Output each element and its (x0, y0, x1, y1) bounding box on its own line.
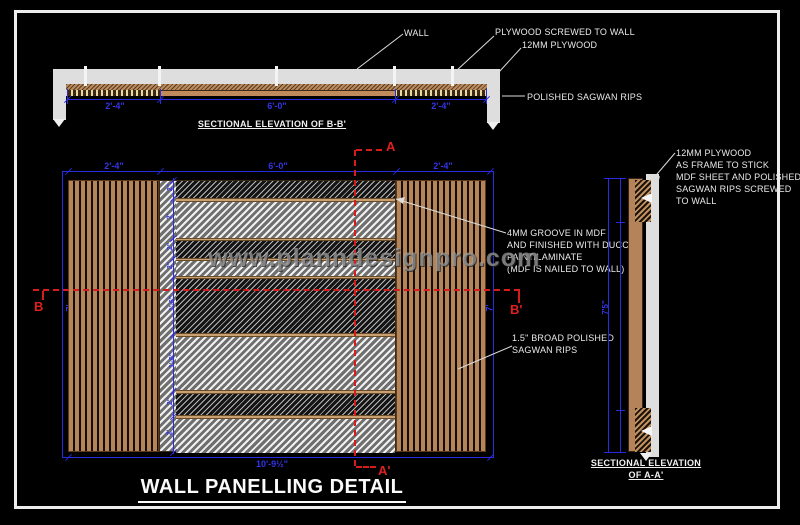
aa-dim-outer (608, 178, 609, 452)
mdf-panel (159, 180, 396, 452)
segment-dim: 2' (166, 214, 173, 220)
segment-dim-line (173, 178, 174, 454)
section-line-b (33, 289, 520, 291)
rips-section-right (395, 90, 487, 96)
bb-dim-left: 2'-4" (80, 101, 150, 111)
mdf-band (176, 181, 395, 198)
aa-caption-line1: SECTIONAL ELEVATION (588, 458, 704, 468)
aa-screw-arrow-bottom (641, 426, 652, 436)
dim-tick (604, 452, 626, 453)
wall-return-right (487, 84, 500, 123)
section-line-a-bottom-bracket (356, 466, 376, 468)
bb-dim-middle: 6'-0" (242, 101, 312, 111)
rips-note-line: 1.5" BROAD POLISHED (512, 332, 614, 344)
segment-dim: 2" (167, 184, 174, 191)
aa-note-line: AS FRAME TO STICK (676, 159, 800, 171)
aa-note-line: 12MM PLYWOOD (676, 147, 800, 159)
section-line-a (354, 150, 356, 466)
elev-dim-height-right: 7' (485, 304, 495, 311)
left-rips-panel (68, 180, 159, 452)
mdf-band (176, 394, 395, 415)
groove-note-line: 4MM GROOVE IN MDF (507, 227, 636, 239)
right-rips-panel (396, 180, 486, 452)
mdf-band (176, 419, 395, 453)
segment-dim: 2' (166, 430, 173, 436)
dim-tick (616, 410, 625, 411)
cad-drawing-wall-panelling-detail: 2'-4" 6'-0" 2'-4" WALL PLYWOOD SCREWED T… (0, 0, 800, 525)
aa-note: 12MM PLYWOOD AS FRAME TO STICK MDF SHEET… (676, 147, 800, 207)
segment-dim: 2" (167, 398, 174, 405)
screw-mark (158, 66, 161, 86)
aa-note-line: SAGWAN RIPS SCREWED (676, 183, 800, 195)
elev-dim-top-right: 2'-4" (408, 161, 478, 171)
mdf-section-middle (160, 90, 395, 96)
rips-section-left (66, 90, 160, 96)
marker-a-top: A (386, 139, 395, 154)
rips-note-line: SAGWAN RIPS (512, 344, 614, 356)
elev-dim-top (62, 171, 493, 172)
segment-dim: 2" (167, 243, 174, 250)
bb-section-caption: SECTIONAL ELEVATION OF B-B' (172, 119, 372, 129)
elev-dim-right (493, 171, 494, 458)
screw-mark (275, 66, 278, 86)
elev-dim-top-left: 2'-4" (79, 161, 149, 171)
marker-b-right: B' (510, 302, 522, 317)
plywood-12mm-label: 12MM PLYWOOD (522, 39, 597, 51)
mdf-band (176, 279, 395, 333)
dim-tick (616, 222, 625, 223)
drawing-title: WALL PANELLING DETAIL (122, 476, 422, 503)
aa-note-line: MDF SHEET AND POLISHED (676, 171, 800, 183)
section-line-a-top-bracket (356, 149, 382, 151)
segment-dim: 2" (167, 262, 174, 269)
elev-dim-bottom (62, 457, 493, 458)
wall-break-mark-left (53, 119, 65, 127)
rips-note: 1.5" BROAD POLISHED SAGWAN RIPS (512, 332, 614, 356)
plywood-screwed-label: PLYWOOD SCREWED TO WALL (495, 26, 635, 38)
segment-dim: 1'-6" (169, 353, 176, 368)
aa-note-line: TO WALL (676, 195, 800, 207)
screw-mark (451, 66, 454, 86)
marker-b-left: B (34, 299, 43, 314)
mdf-band (176, 337, 395, 390)
bb-dim-right: 2'-4" (406, 101, 476, 111)
polished-rips-label: POLISHED SAGWAN RIPS (527, 91, 642, 103)
aa-caption-line2: OF A-A' (588, 470, 704, 480)
elev-dim-bottom-total: 10'-9½" (227, 459, 317, 469)
segment-dim: 1'-6" (169, 296, 176, 311)
watermark: www.planndesignpro.com (208, 244, 540, 273)
drawing-title-text: WALL PANELLING DETAIL (138, 476, 407, 503)
screw-mark (393, 66, 396, 86)
bb-dim-line (67, 99, 487, 100)
screw-mark (84, 66, 87, 86)
elev-dim-top-middle: 6'-0" (243, 161, 313, 171)
mdf-band (176, 202, 395, 238)
wall-label: WALL (404, 27, 429, 39)
aa-screw-arrow-top (641, 193, 652, 203)
dim-tick (604, 178, 626, 179)
aa-dim-height: 7'5" (601, 300, 610, 315)
elev-dim-left (62, 171, 63, 458)
wall-break-mark-right (487, 122, 499, 130)
